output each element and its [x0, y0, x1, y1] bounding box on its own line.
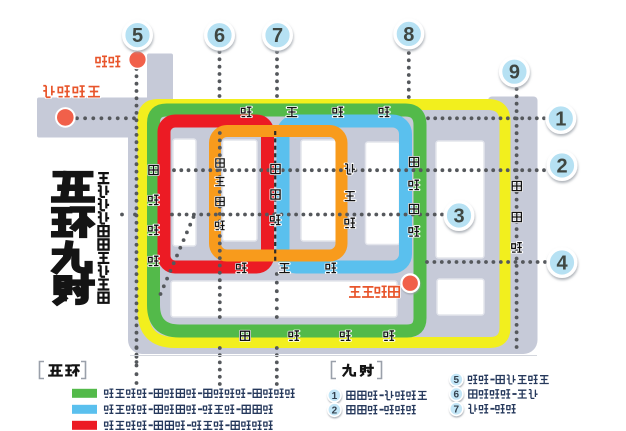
svg-text:6: 6 [214, 25, 225, 47]
svg-text:5: 5 [454, 375, 460, 386]
svg-text:7: 7 [454, 404, 460, 415]
svg-text:8: 8 [403, 24, 414, 46]
svg-text:9: 9 [509, 62, 520, 84]
svg-text:5: 5 [132, 25, 143, 47]
svg-text:2: 2 [556, 156, 567, 178]
svg-text:2: 2 [332, 405, 338, 416]
svg-text:7: 7 [272, 25, 283, 47]
svg-text:6: 6 [454, 390, 460, 401]
svg-text:1: 1 [332, 391, 338, 402]
svg-text:4: 4 [556, 253, 568, 275]
svg-text:3: 3 [453, 206, 464, 228]
svg-text:1: 1 [555, 109, 566, 131]
